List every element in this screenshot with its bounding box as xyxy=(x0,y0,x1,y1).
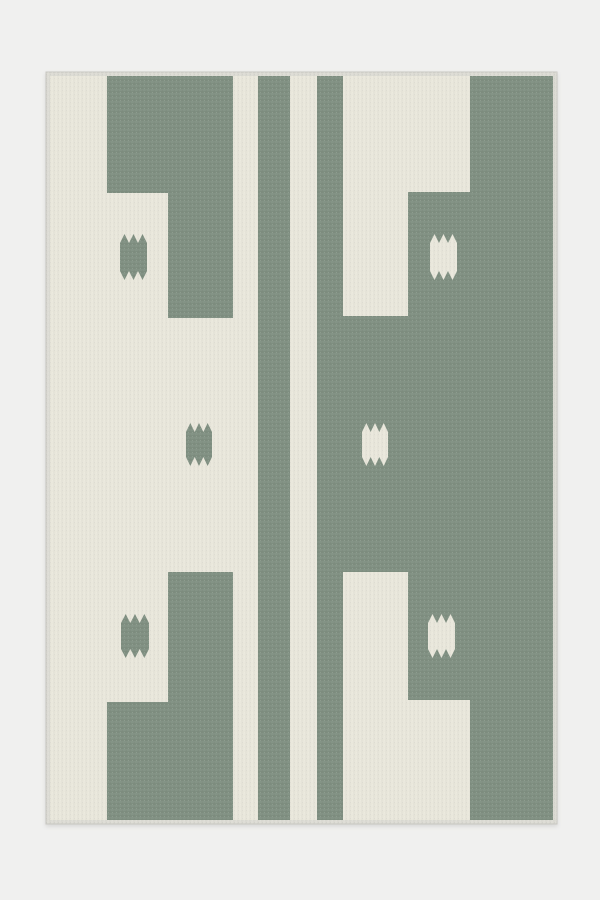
rug-image xyxy=(0,0,600,900)
page-background xyxy=(0,0,600,900)
rug xyxy=(46,72,557,824)
fabric-weave-texture xyxy=(46,72,557,824)
